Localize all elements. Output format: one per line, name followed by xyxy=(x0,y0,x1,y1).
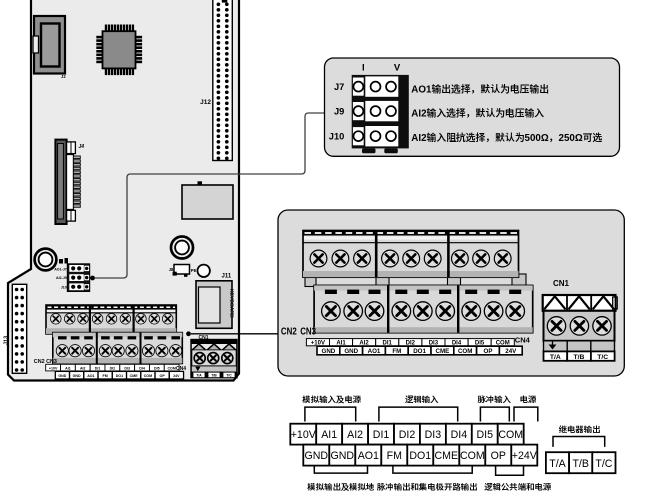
svg-text:J10: J10 xyxy=(329,132,345,142)
svg-text:CN2: CN2 xyxy=(281,326,297,337)
svg-text:+10V: +10V xyxy=(291,429,317,441)
svg-text:J4: J4 xyxy=(79,144,85,150)
svg-text:AI2输入选择，默认为电压输入: AI2输入选择，默认为电压输入 xyxy=(411,108,544,120)
svg-text:GND: GND xyxy=(73,374,81,378)
svg-text:AO1: AO1 xyxy=(368,348,381,355)
svg-text:I: I xyxy=(362,63,365,74)
svg-text:T/A: T/A xyxy=(550,354,561,361)
svg-text:OP: OP xyxy=(484,348,493,355)
svg-text:GND: GND xyxy=(344,348,358,355)
svg-text:FM: FM xyxy=(387,450,402,462)
svg-text:AI2-J9: AI2-J9 xyxy=(56,276,67,280)
svg-text:模拟输入及电源: 模拟输入及电源 xyxy=(302,394,361,406)
svg-text:DO1: DO1 xyxy=(116,374,123,378)
svg-text:DI2: DI2 xyxy=(399,429,416,441)
svg-text:AI1: AI1 xyxy=(321,429,337,441)
svg-text:DI5: DI5 xyxy=(477,429,494,441)
svg-text:+24V: +24V xyxy=(512,450,538,462)
svg-text:GND: GND xyxy=(305,450,329,462)
svg-text:OP: OP xyxy=(160,374,166,378)
svg-text:GND: GND xyxy=(331,450,355,462)
svg-text:逻辑公共端和电源: 逻辑公共端和电源 xyxy=(483,481,552,493)
svg-text:AO1: AO1 xyxy=(87,374,94,378)
svg-text:COM: COM xyxy=(460,450,485,462)
svg-text:逻辑输入: 逻辑输入 xyxy=(404,394,439,406)
svg-text:CN4: CN4 xyxy=(176,366,186,372)
svg-text:FM: FM xyxy=(392,348,401,355)
svg-text:CME: CME xyxy=(436,348,450,355)
svg-text:COM: COM xyxy=(458,348,472,355)
svg-text:J12: J12 xyxy=(200,99,211,106)
svg-text:24V: 24V xyxy=(173,374,180,378)
svg-text:CME: CME xyxy=(435,450,459,462)
svg-text:+10V: +10V xyxy=(49,366,58,370)
svg-text:AI2: AI2 xyxy=(347,429,363,441)
svg-text:OP: OP xyxy=(491,450,506,462)
svg-text:脉冲输入: 脉冲输入 xyxy=(477,394,511,406)
svg-text:CN2 CN3: CN2 CN3 xyxy=(34,359,57,365)
svg-text:J10: J10 xyxy=(61,285,67,289)
svg-text:DI1: DI1 xyxy=(95,366,101,370)
svg-text:AI2输入阻抗选择，默认为500Ω，250Ω可选: AI2输入阻抗选择，默认为500Ω，250Ω可选 xyxy=(411,132,602,144)
svg-text:AI1: AI1 xyxy=(65,366,71,370)
svg-text:COM: COM xyxy=(144,374,152,378)
svg-text:T/C: T/C xyxy=(226,374,232,378)
svg-text:AO1: AO1 xyxy=(358,450,379,462)
svg-text:PE: PE xyxy=(191,268,197,273)
svg-text:CN1: CN1 xyxy=(553,279,570,288)
svg-text:模拟输出及模拟地: 模拟输出及模拟地 xyxy=(307,481,374,493)
svg-text:DI1: DI1 xyxy=(373,429,390,441)
svg-text:DO1: DO1 xyxy=(409,450,431,462)
svg-text:T/A: T/A xyxy=(196,374,202,378)
svg-text:J7: J7 xyxy=(334,82,344,92)
svg-text:AO1输出选择，默认为电压输出: AO1输出选择，默认为电压输出 xyxy=(411,83,549,95)
svg-text:DI4: DI4 xyxy=(139,366,145,370)
svg-text:CME: CME xyxy=(130,374,139,378)
svg-text:DI3: DI3 xyxy=(124,366,130,370)
svg-text:FM: FM xyxy=(103,374,108,378)
svg-text:DI4: DI4 xyxy=(451,429,468,441)
svg-text:DI3: DI3 xyxy=(425,429,442,441)
svg-text:COM: COM xyxy=(167,366,175,370)
svg-text:J2: J2 xyxy=(61,74,66,79)
svg-text:T/B: T/B xyxy=(574,354,585,361)
svg-text:CN4: CN4 xyxy=(515,335,531,344)
svg-text:继电器输出: 继电器输出 xyxy=(558,423,601,435)
svg-text:J11: J11 xyxy=(222,274,232,280)
svg-text:AO1-J7: AO1-J7 xyxy=(54,268,67,272)
svg-text:DO1: DO1 xyxy=(413,348,426,355)
svg-text:COM: COM xyxy=(498,429,523,441)
svg-text:DI5: DI5 xyxy=(154,366,160,370)
svg-text:J9: J9 xyxy=(334,107,344,117)
svg-text:DI2: DI2 xyxy=(110,366,116,370)
svg-text:AI2: AI2 xyxy=(80,366,86,370)
svg-text:T/B: T/B xyxy=(572,458,588,470)
svg-text:GND: GND xyxy=(58,374,66,378)
svg-text:T/C: T/C xyxy=(597,354,608,361)
svg-text:电源: 电源 xyxy=(520,394,537,406)
svg-text:T/C: T/C xyxy=(595,458,612,470)
svg-text:24V: 24V xyxy=(505,348,517,355)
svg-text:脉冲输出和集电极开路输出: 脉冲输出和集电极开路输出 xyxy=(377,481,478,493)
svg-text:GND: GND xyxy=(322,348,336,355)
svg-text:V: V xyxy=(394,63,401,74)
svg-text:J13: J13 xyxy=(4,336,10,345)
svg-text:CN3: CN3 xyxy=(300,326,316,337)
svg-text:T/B: T/B xyxy=(211,374,217,378)
svg-text:KEYBOARD: KEYBOARD xyxy=(228,289,234,318)
svg-text:T/A: T/A xyxy=(549,458,566,470)
